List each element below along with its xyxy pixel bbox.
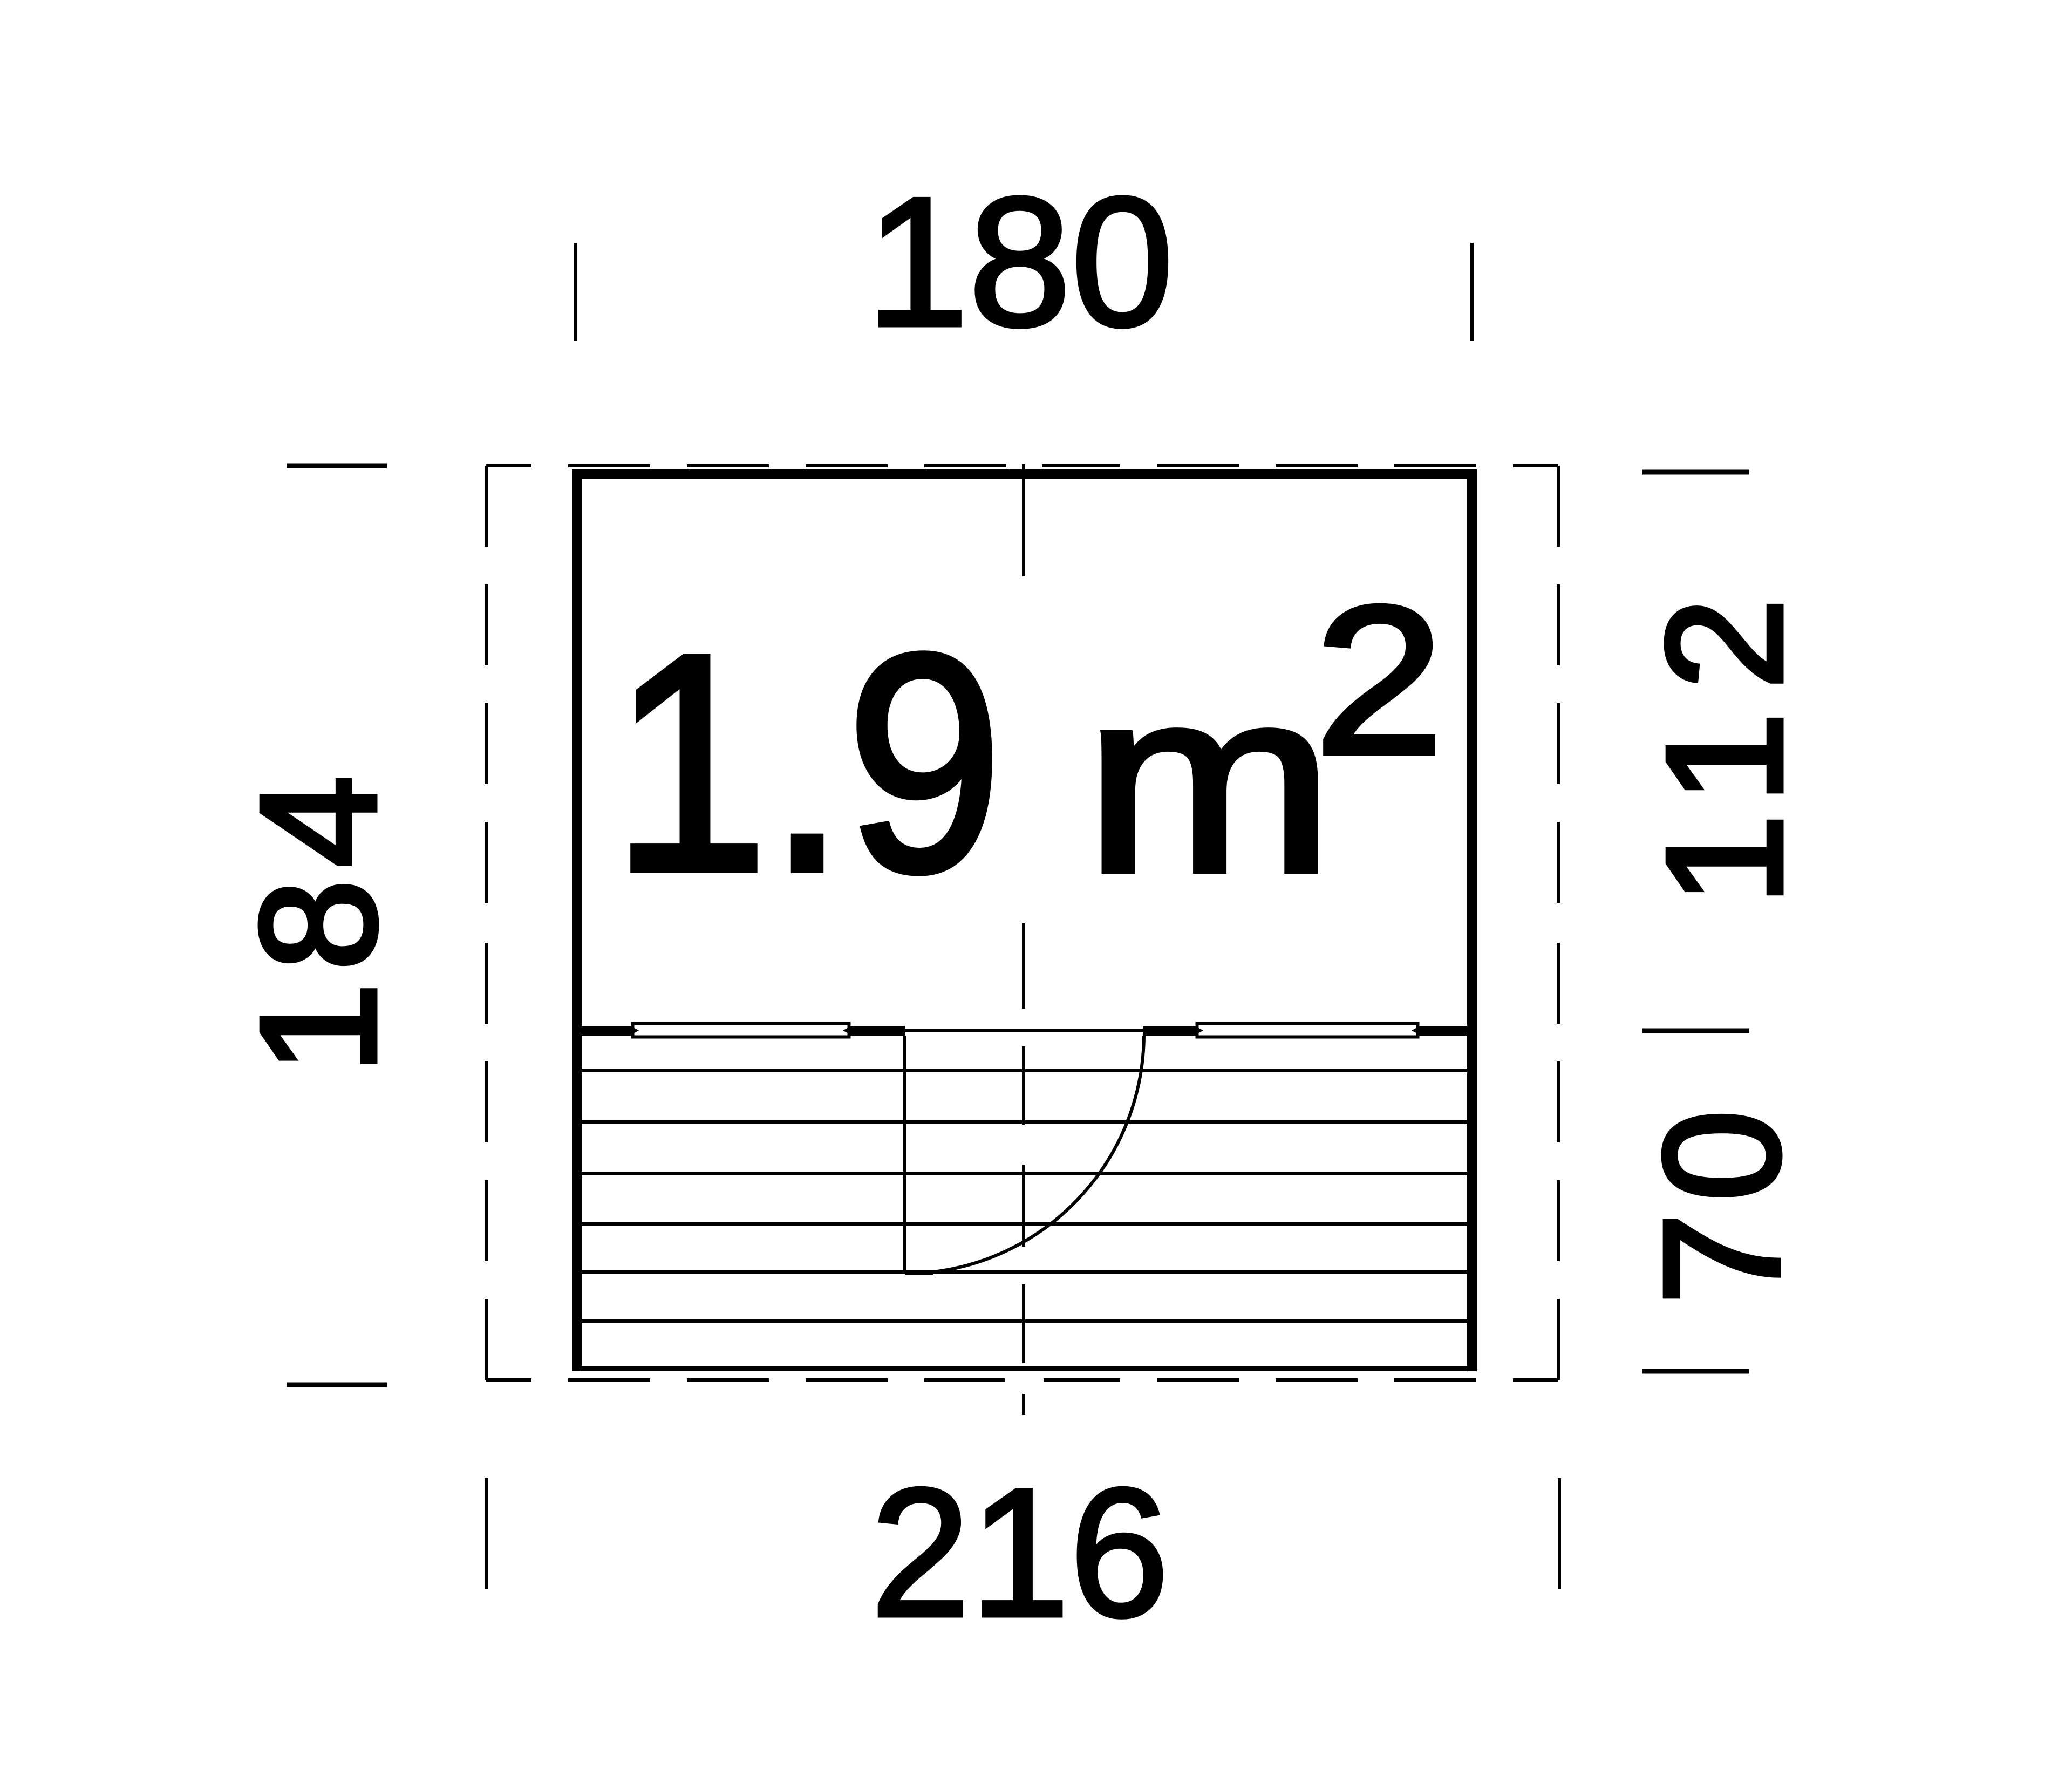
svg-text:m: m bbox=[1085, 636, 1334, 926]
svg-text:2: 2 bbox=[1314, 562, 1444, 798]
svg-text:184: 184 bbox=[226, 776, 410, 1074]
svg-text:1.9: 1.9 bbox=[612, 589, 1003, 936]
svg-text:180: 180 bbox=[866, 159, 1174, 365]
svg-text:112: 112 bbox=[1632, 598, 1816, 906]
svg-text:216: 216 bbox=[871, 1450, 1169, 1655]
